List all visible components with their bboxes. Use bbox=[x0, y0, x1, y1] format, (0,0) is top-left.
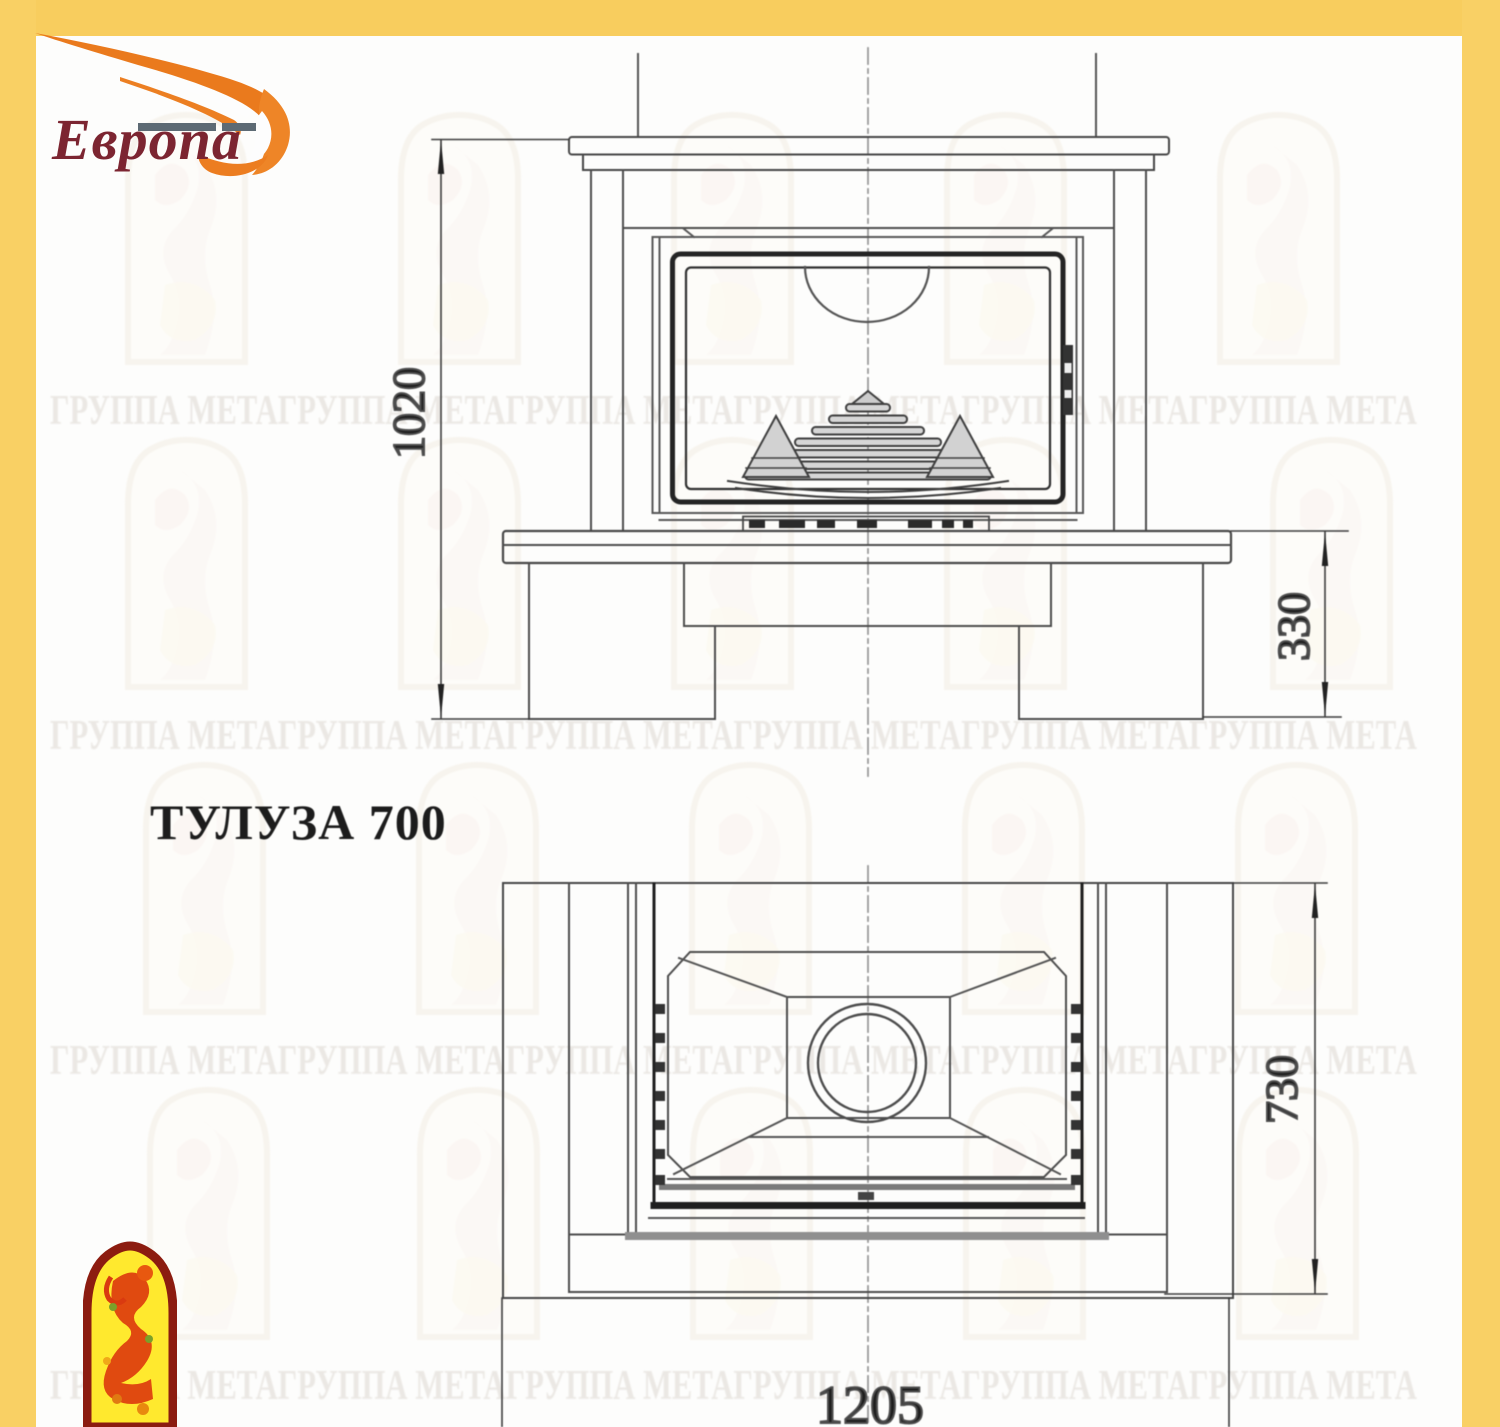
svg-text:1205: 1205 bbox=[816, 1375, 924, 1427]
svg-text:1020: 1020 bbox=[383, 367, 434, 459]
svg-text:730: 730 bbox=[1256, 1055, 1307, 1124]
svg-text:330: 330 bbox=[1268, 592, 1319, 661]
